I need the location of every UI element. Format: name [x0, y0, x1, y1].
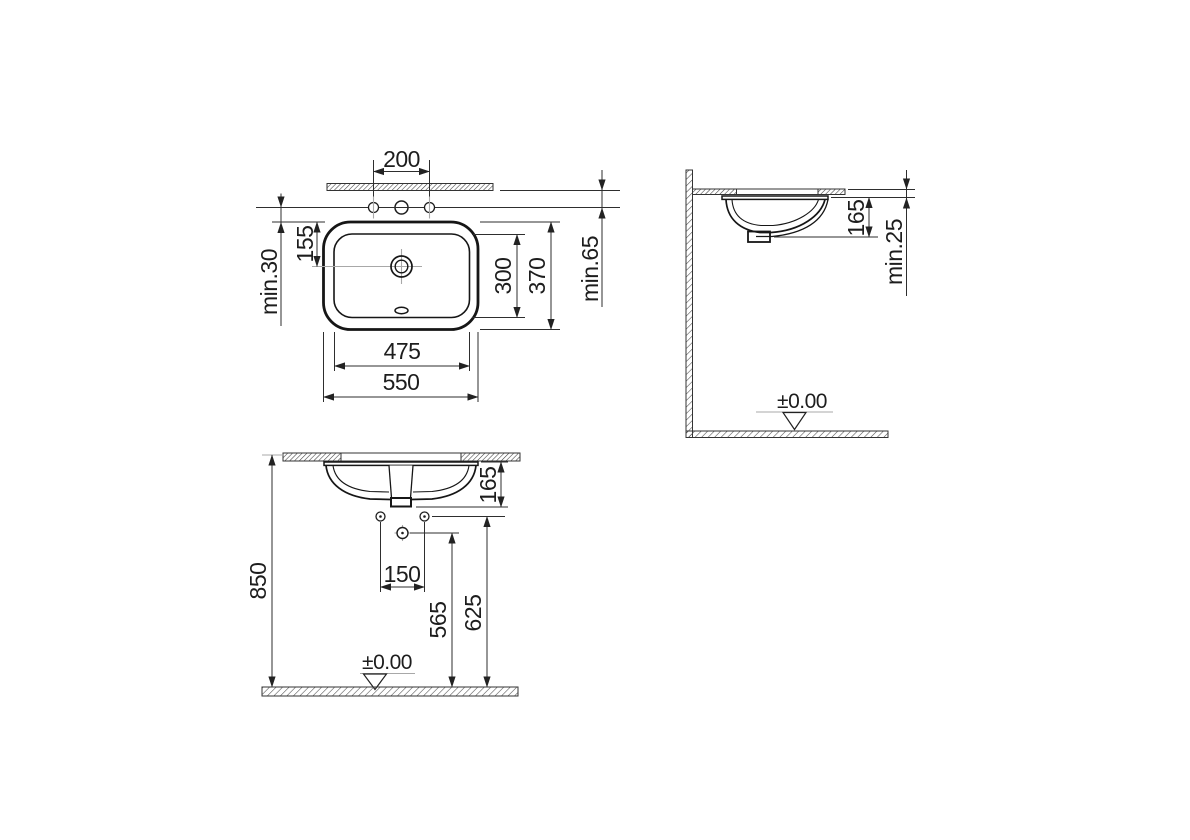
- counter-hatch-left: [283, 453, 341, 461]
- dim-label: 850: [245, 563, 271, 600]
- dim-label: min.25: [881, 219, 907, 285]
- dim-label: 155: [292, 226, 318, 263]
- dim-label: 165: [475, 467, 501, 504]
- floor-section: [686, 431, 888, 438]
- background: [0, 0, 1190, 840]
- counter-hatch-left: [693, 189, 737, 195]
- floor-section-front: [262, 687, 518, 696]
- counter-section-front: [283, 453, 520, 461]
- counter-edge-section: [327, 184, 493, 191]
- dim-label: 165: [843, 200, 869, 237]
- dim-label: 475: [384, 338, 421, 364]
- supply-point-right-center: [423, 515, 426, 518]
- supply-point-left-center: [379, 515, 382, 518]
- datum-label: ±0.00: [362, 651, 412, 674]
- dim-label: 565: [425, 602, 451, 639]
- dim-label: 300: [490, 258, 516, 295]
- counter-section: [693, 189, 846, 195]
- dim-label: 200: [383, 146, 420, 172]
- dim-label: 625: [460, 595, 486, 632]
- drain-pillar-fill: [389, 466, 413, 499]
- dim-label: 370: [524, 258, 550, 295]
- wall-section: [686, 170, 693, 438]
- dim-label: min.30: [256, 249, 282, 315]
- washbasin-dimension-drawing: 200 min.30: [0, 0, 1190, 840]
- dim-label: min.65: [577, 236, 603, 302]
- counter-hatch-right: [818, 189, 845, 195]
- drain-point-center: [401, 532, 404, 535]
- datum-label: ±0.00: [777, 390, 827, 413]
- dim-label: 150: [384, 561, 421, 587]
- dim-label: 550: [383, 369, 420, 395]
- dim-rim-to-drain: 155: [292, 222, 318, 267]
- technical-drawing-page: 200 min.30: [0, 0, 1190, 840]
- counter-hatch-right: [461, 453, 520, 461]
